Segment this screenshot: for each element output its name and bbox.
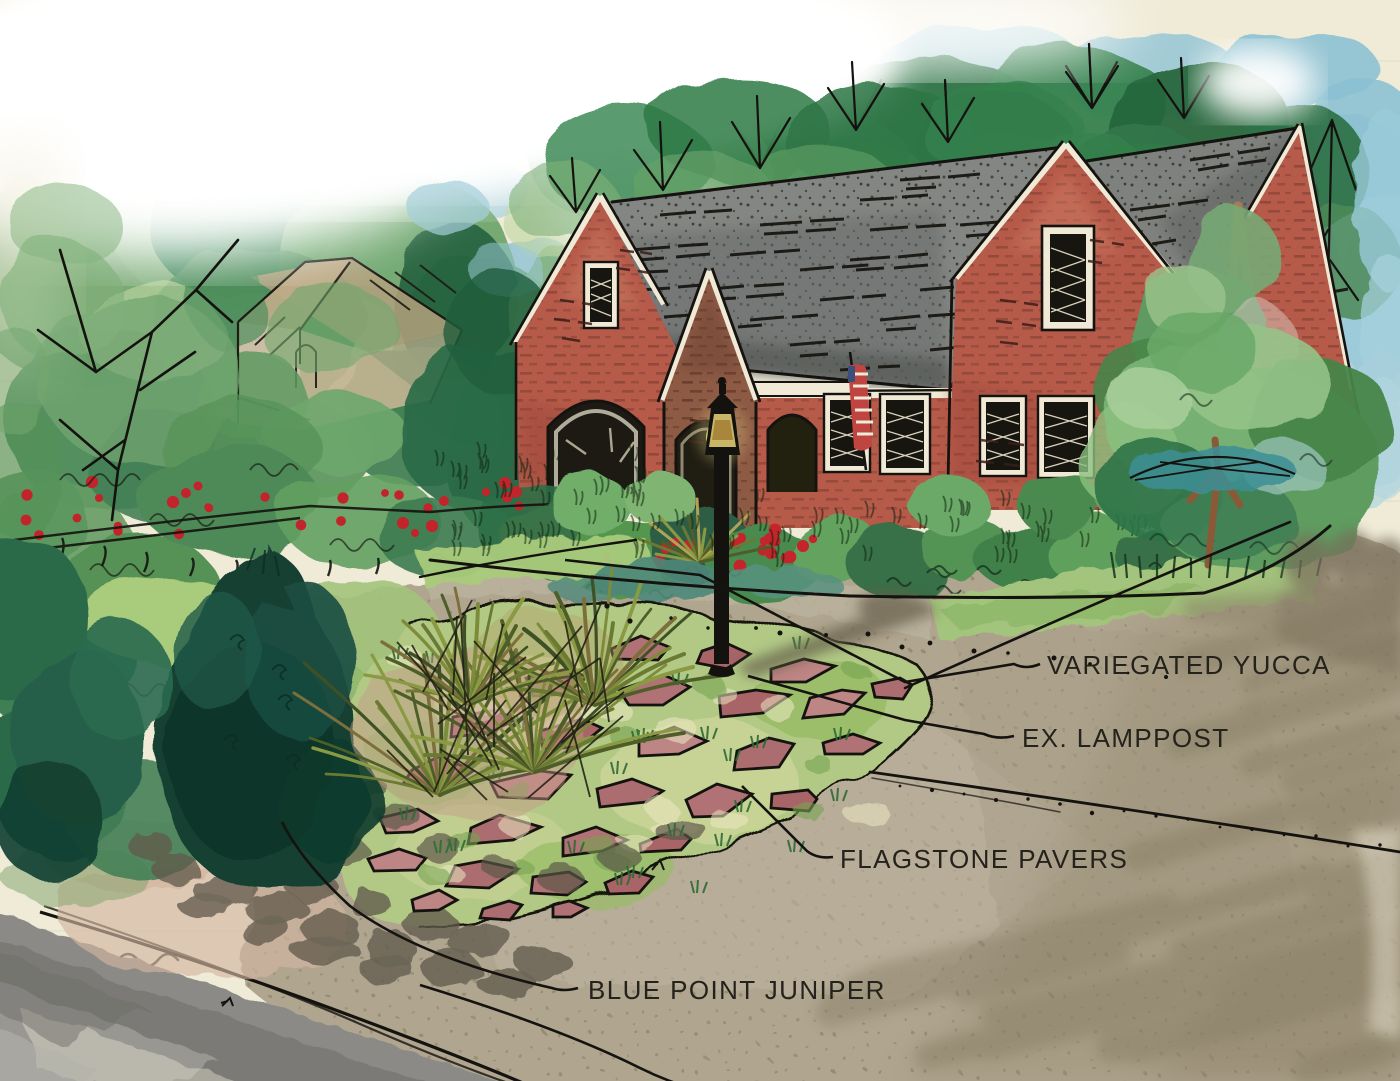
svg-text:VARIEGATED YUCCA: VARIEGATED YUCCA <box>1047 650 1331 680</box>
svg-text:BLUE POINT JUNIPER: BLUE POINT JUNIPER <box>588 975 886 1005</box>
svg-text:EX. LAMPPOST: EX. LAMPPOST <box>1022 723 1230 753</box>
svg-text:FLAGSTONE PAVERS: FLAGSTONE PAVERS <box>840 844 1128 874</box>
